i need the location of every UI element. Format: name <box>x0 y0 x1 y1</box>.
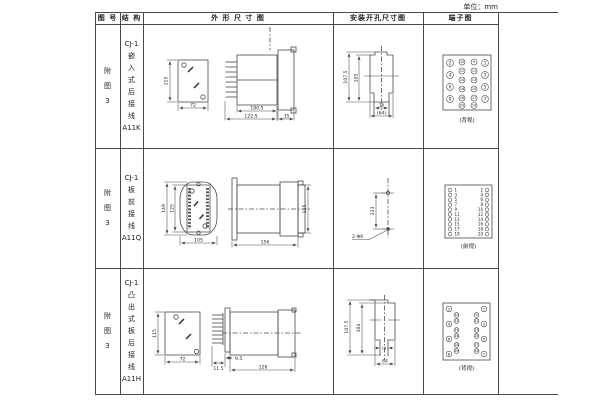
view-caption: (背视) <box>459 364 474 372</box>
dim-front-width: 72 <box>190 103 196 109</box>
svg-text:13: 13 <box>474 328 478 332</box>
dim-inner-height: 125 <box>169 204 175 213</box>
svg-text:8: 8 <box>449 96 452 101</box>
svg-text:11: 11 <box>472 69 476 73</box>
figure-no-cell-row3: 附图3 <box>95 268 120 394</box>
svg-text:1: 1 <box>484 60 487 65</box>
front-view: 149 125 105 <box>161 182 217 245</box>
svg-text:12: 12 <box>454 319 458 323</box>
figure-no-cell-row2: 附图3 <box>95 148 120 268</box>
screw-hole <box>197 231 200 234</box>
dim-hole-span: 133 <box>370 207 376 216</box>
svg-text:15: 15 <box>474 334 478 338</box>
screw-slot-mark <box>194 202 198 207</box>
outline-drawing-row2: 149 125 105 156 115 <box>143 148 333 268</box>
screw-hole <box>201 95 205 99</box>
svg-text:10: 10 <box>460 60 464 64</box>
svg-text:19: 19 <box>455 232 461 237</box>
svg-text:14: 14 <box>454 328 458 332</box>
svg-text:7: 7 <box>484 96 487 101</box>
svg-text:16: 16 <box>460 87 464 91</box>
terminal-grid: 2468101214161820911131517191357 <box>446 306 487 357</box>
mounting-drawing-row1: 107.5 105 16 (64) <box>333 24 423 148</box>
view-caption: (背视) <box>459 116 474 124</box>
terminal-grid: 1357911131517192468101214161820 <box>448 187 489 236</box>
dim-cutout-w1: 16 <box>382 345 387 350</box>
table-border-bottom <box>95 394 558 395</box>
front-view: 115 72 <box>164 60 209 111</box>
screw-hole <box>197 183 200 186</box>
svg-text:18: 18 <box>460 96 464 100</box>
header-mounting-holes: 安装开孔尺寸图 <box>333 12 423 24</box>
front-view: 115 72 <box>152 312 200 365</box>
svg-text:20: 20 <box>454 349 458 353</box>
dim-cutout-h1: 107.5 <box>344 320 350 333</box>
mounting-drawing-row2: 133 2-Φ6 <box>333 148 423 268</box>
dim-front-width: 105 <box>194 238 203 244</box>
dim-cutout-w2: (64) <box>377 111 387 117</box>
svg-text:19: 19 <box>474 349 478 353</box>
outline-drawing-row1: 115 72 100.5 122.5 <box>143 24 333 148</box>
manual-page: 单位：mm 图 号 结 构 外 形 尺 寸 图 安装开孔尺寸图 端子图 附图3 … <box>0 0 600 400</box>
dim-cutout-w1: 16 <box>379 103 385 108</box>
svg-text:9: 9 <box>473 60 475 64</box>
side-view: 156 115 <box>228 178 311 248</box>
dim-depth: 100.5 <box>250 105 263 111</box>
table-border-right <box>498 12 499 395</box>
svg-text:17: 17 <box>472 96 476 100</box>
screw-slot-mark <box>179 319 184 324</box>
side-view: 11.5 9.5 126 <box>212 308 301 372</box>
svg-text:11: 11 <box>474 319 478 323</box>
header-terminal-diagram: 端子图 <box>423 12 498 24</box>
screw-hole <box>190 189 194 193</box>
dim-offset1: 11.5 <box>213 366 223 372</box>
dim-offset2: 9.5 <box>235 356 242 362</box>
dim-depth: 126 <box>259 364 268 370</box>
header-figure-no: 图 号 <box>95 12 120 24</box>
hole-spec-label: 2-Φ6 <box>352 234 363 240</box>
dim-side-height: 115 <box>302 205 308 214</box>
screw-slot-mark <box>188 67 193 72</box>
svg-text:6: 6 <box>449 84 452 89</box>
figure-no-cell-row1: 附图3 <box>95 24 120 148</box>
dim-cutout-h2: 104 <box>356 324 362 333</box>
screw-hole <box>174 315 178 319</box>
svg-text:15: 15 <box>472 87 476 91</box>
svg-text:10: 10 <box>454 313 458 317</box>
unit-label: 单位：mm <box>438 2 498 12</box>
svg-text:18: 18 <box>454 343 458 347</box>
dim-depth: 156 <box>261 239 270 245</box>
svg-text:9: 9 <box>475 313 477 317</box>
dim-depth-total: 122.5 <box>244 113 257 119</box>
svg-text:3: 3 <box>484 72 487 77</box>
svg-text:12: 12 <box>460 69 464 73</box>
header-outline-dims: 外 形 尺 寸 图 <box>143 12 333 24</box>
terminal-drawing-row2: 1357911131517192468101214161820 (前视) <box>423 148 498 268</box>
svg-text:4: 4 <box>449 72 452 77</box>
outline-drawing-row3: 115 72 11.5 9.5 126 <box>143 268 333 394</box>
terminal-grid: 2468135710912111413161518172019 <box>447 59 489 109</box>
screw-slot-mark <box>194 83 199 88</box>
svg-text:16: 16 <box>454 334 458 338</box>
svg-text:2: 2 <box>449 60 452 65</box>
svg-text:5: 5 <box>484 84 487 89</box>
screw-hole <box>194 349 198 353</box>
structure-cell-row3: CJ-1凸出式板后接线A11H <box>120 268 143 394</box>
screw-slot-mark <box>186 334 191 339</box>
svg-text:14: 14 <box>460 78 464 82</box>
terminal-drawing-row3: 2468101214161820911131517191357 (背视) <box>423 268 498 394</box>
structure-cell-row2: CJ-1板前接线A11Q <box>120 148 143 268</box>
dim-front-height: 115 <box>164 77 170 86</box>
dim-front-height: 149 <box>161 204 167 213</box>
screw-hole <box>182 63 186 67</box>
terminal-drawing-row1: 2468135710912111413161518172019 (背视) <box>423 24 498 148</box>
screw-slot-mark <box>200 215 204 220</box>
dim-front-height: 115 <box>152 329 158 338</box>
header-structure: 结 构 <box>120 12 143 24</box>
svg-text:20: 20 <box>478 232 484 237</box>
dim-cutout-h1: 107.5 <box>343 70 349 83</box>
structure-cell-row1: CJ-1嵌入式后接线A11K <box>120 24 143 148</box>
svg-text:20: 20 <box>460 104 464 108</box>
mounting-drawing-row3: 107.5 104 16 64 <box>333 268 423 394</box>
dim-panel: 35 <box>284 113 290 119</box>
svg-text:13: 13 <box>472 78 476 82</box>
dim-cutout-h2: 105 <box>353 74 359 83</box>
dim-front-width: 72 <box>180 356 186 362</box>
view-caption: (前视) <box>461 242 476 250</box>
side-view: 100.5 122.5 35 <box>225 27 296 121</box>
dim-cutout-w2: 64 <box>382 358 388 364</box>
svg-text:17: 17 <box>474 343 478 347</box>
svg-text:19: 19 <box>472 104 476 108</box>
